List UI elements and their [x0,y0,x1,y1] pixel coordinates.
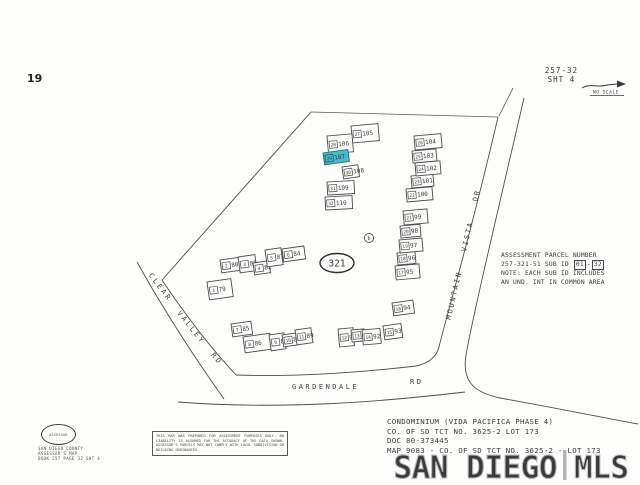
unit-number-label-100: 100 [417,191,429,199]
sub-id-label-105: 27 [354,132,360,138]
block-letter-b: b [364,233,373,242]
sub-id-label-109: 31 [330,186,336,192]
unit-number-label-85: 85 [242,325,251,333]
building-93: 1593 [383,323,403,339]
unit-number-label-101: 101 [422,177,434,185]
building-79: 179 [207,279,233,300]
street-label-gardendale-rd: RD [410,378,423,386]
sub-id-separator: - [587,261,591,268]
assessment-note-line1: ASSESSMENT PARCEL NUMBER [501,252,605,260]
assessment-parcel-note: ASSESSMENT PARCEL NUMBER 257-321-51 SUB … [501,252,605,287]
building-109: 31109 [327,181,355,195]
building-98: 2098 [400,224,421,238]
building-101: 23101 [411,174,434,188]
unit-number-label-95: 95 [406,269,414,277]
sub-id-label-99: 21 [406,215,412,221]
unit-number-label-94: 94 [403,304,412,312]
parcel-number-label: 321 [328,259,345,270]
building-96: 1896 [397,251,416,265]
unit-number-label-97: 97 [410,242,418,250]
building-85: 785 [231,321,253,337]
sub-id-label-96: 18 [400,256,406,262]
sub-id-to: 32 [592,260,604,270]
sheet-reference-sheet: SHT 4 [545,75,578,84]
building-84: 684 [282,246,306,262]
building-102: 24102 [415,161,441,176]
unit-number-label-92: 92 [373,333,381,341]
unit-number-label-106: 106 [338,140,350,148]
condo-line4: MAP 9083 - CO. OF SD TCT NO. 3625-2 - LO… [387,446,601,456]
street-label-gardendale: GARDENDALE [292,383,359,391]
sheet-reference: 257-32 SHT 4 [545,66,578,84]
unit-number-label-110: 110 [336,200,348,208]
county-map-credit: SAN DIEGO COUNTY ASSESSOR'S MAP BOOK 257… [38,446,100,462]
unit-number-label-86: 86 [254,340,263,348]
unit-number-label-96: 96 [408,255,416,263]
street-label-mountain-vista: MOUNTAIN VISTA DR [445,188,483,320]
sub-id-label-92: 14 [365,335,371,341]
assessor-map-page: CLEAR VALLEY RD MOUNTAIN VISTA DR GARDEN… [0,0,640,485]
assessment-note-prefix: 257-321-51 SUB ID [501,261,569,268]
sub-id-label-104: 26 [417,140,423,146]
building-95: 1795 [395,264,420,280]
unit-number-label-89: 89 [306,332,315,340]
sub-id-label-90: 12 [341,335,347,341]
building-104: 26104 [414,134,442,150]
sheet-reference-book: 257-32 [545,66,578,75]
road-stub-north [499,88,513,116]
building-86: 886 [243,333,272,353]
building-99: 2199 [403,209,428,225]
sub-id-label-100: 22 [409,193,415,199]
unit-number-label-99: 99 [414,214,422,222]
sub-id-label-106: 28 [330,142,336,148]
building-92: 1492 [362,328,381,345]
unit-number-label-84: 84 [293,250,302,258]
building-108: 30108 [342,164,365,179]
sub-id-label-101: 23 [414,179,420,185]
no-scale-label: NO SCALE [593,90,619,96]
unit-number-label-80: 80 [231,261,240,269]
unit-number-label-104: 104 [425,138,437,146]
parcel-north-boundary [311,112,498,117]
building-107: 29107 [323,150,349,165]
gardendale-south-edge [178,392,465,405]
assessor-seal-icon: ASSESSOR [41,424,76,445]
building-97: 1997 [399,238,423,253]
unit-number-label-102: 102 [426,165,438,173]
building-89: 1189 [295,327,315,344]
block-letter-label: b [367,236,370,242]
assessor-seal-text: ASSESSOR [49,433,68,437]
building-105: 27105 [351,124,379,143]
buildings-layer: 1792803814825836847858869871088118912901… [207,124,442,353]
condominium-legal-block: CONDOMINIUM (VIDA PACIFICA PHASE 4) CO. … [387,417,601,455]
building-110: 32110 [325,196,353,210]
unit-number-label-79: 79 [218,286,227,294]
building-94: 1694 [392,300,415,316]
unit-number-label-98: 98 [411,228,419,236]
condo-line2: CO. OF SD TCT NO. 3625-2 LOT 173 [387,427,601,437]
assessment-note-line2: 257-321-51 SUB ID 01-32 [501,260,605,270]
sub-id-label-97: 19 [402,244,408,250]
condo-line1: CONDOMINIUM (VIDA PACIFICA PHASE 4) [387,417,601,427]
building-100: 22100 [406,187,433,202]
unit-number-label-93: 93 [394,328,403,336]
unit-number-label-109: 109 [338,185,350,193]
sub-id-label-91: 13 [354,333,360,339]
unit-number-label-105: 105 [362,130,374,138]
parcel-number-321: 321 [320,254,354,273]
sub-id-label-103: 25 [415,154,421,160]
assessment-note-line3: NOTE: EACH SUB ID INCLUDES [501,270,605,278]
page-number: 19 [27,72,42,85]
sub-id-label-95: 17 [398,270,404,276]
building-103: 25103 [412,149,437,163]
sub-id-label-102: 24 [418,167,424,173]
unit-number-label-103: 103 [423,152,435,160]
unit-number-label-108: 108 [353,167,365,175]
sub-id-label-98: 20 [403,229,409,235]
assessment-note-line4: AN UND. INT IN COMMON AREA [501,279,605,287]
disclaimer-box: THIS MAP WAS PREPARED FOR ASSESSMENT PUR… [152,431,288,456]
sub-id-label-110: 32 [328,201,334,207]
county-credit-line3: BOOK 257 PAGE 32 SHT 4 [38,456,100,461]
north-arrow-icon: NO SCALE [582,81,626,96]
condo-line3: DOC 80-373445 [387,436,601,446]
sub-id-from: 01 [574,260,586,270]
